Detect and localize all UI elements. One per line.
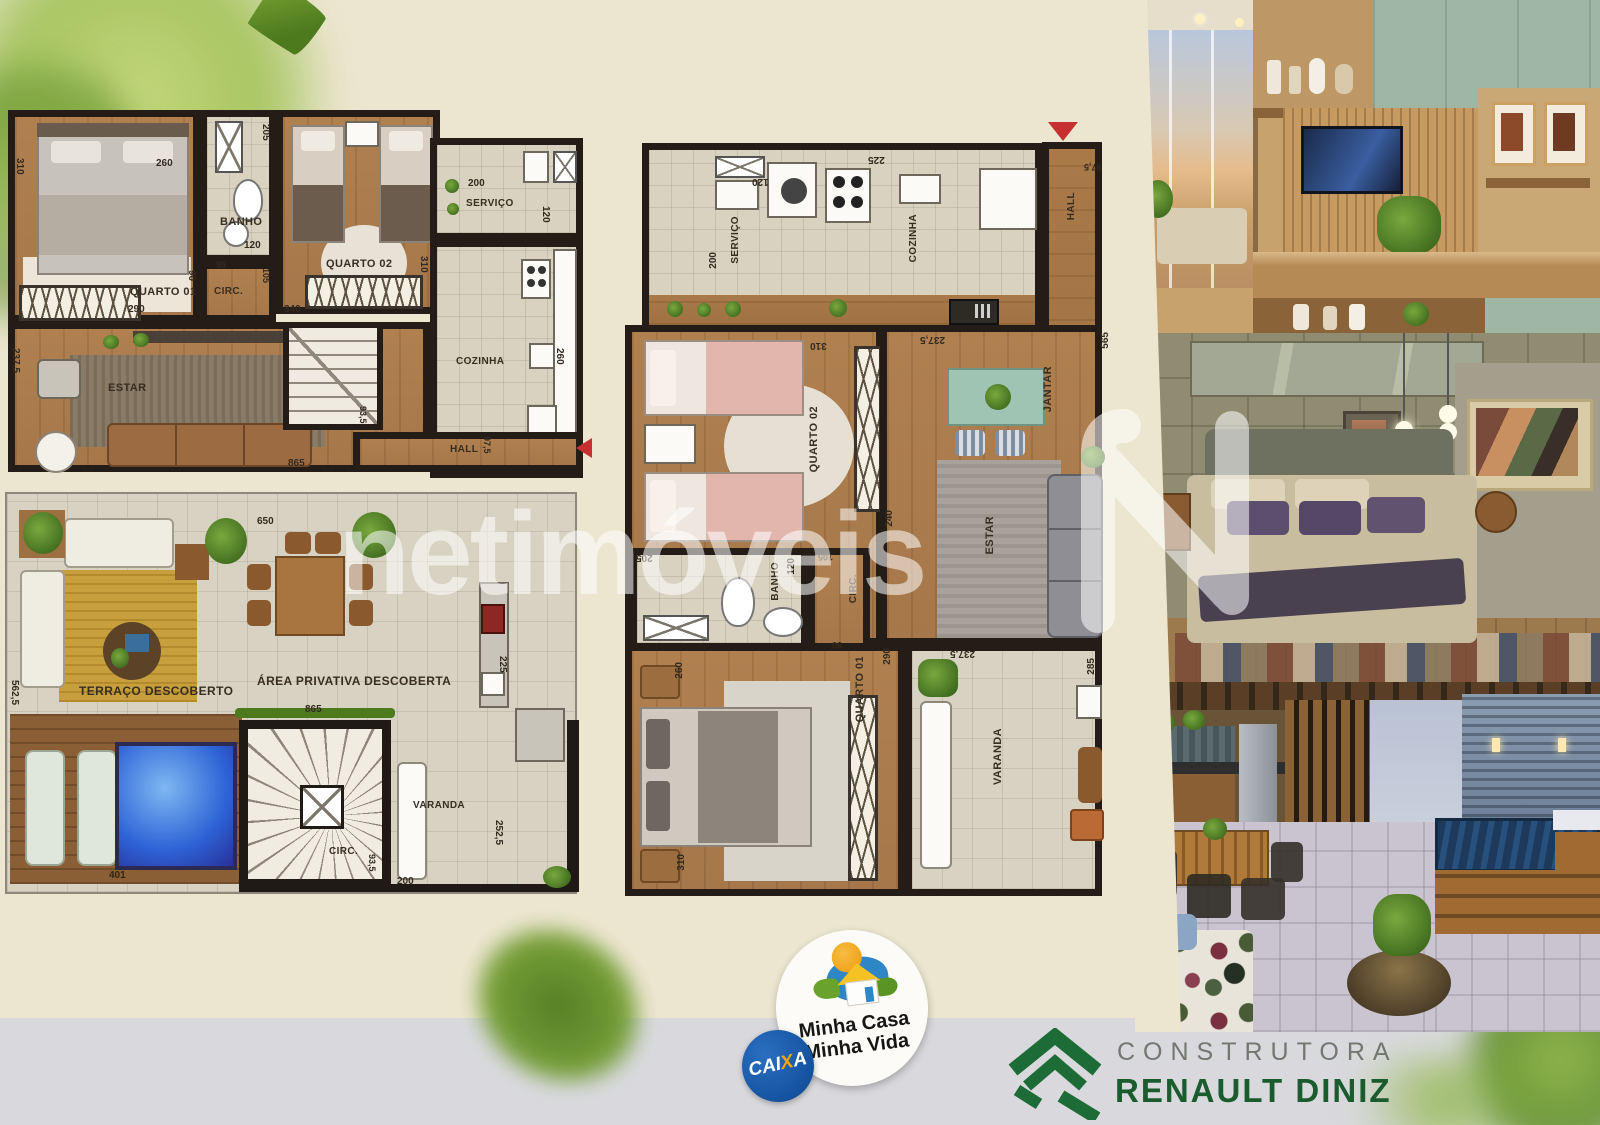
photo-terrace (1135, 682, 1600, 1032)
sconce-light (1492, 738, 1500, 752)
rug (937, 460, 1061, 638)
side-table (35, 431, 77, 473)
dim: 260 (156, 158, 173, 169)
stove (521, 259, 551, 299)
room-label: VARANDA (992, 728, 1004, 785)
caixa-wordmark: CAIXA (740, 1047, 815, 1083)
dim: 290 (882, 648, 893, 665)
room-label: HALL (450, 444, 478, 455)
single-bed (291, 125, 345, 243)
shower (215, 121, 243, 173)
builder-name-text: RENAULT DINIZ (1115, 1072, 1392, 1110)
mirror-strip (1190, 341, 1484, 397)
caixa-letters: A (791, 1048, 809, 1071)
plant (1183, 710, 1205, 730)
stone-wall (1462, 694, 1600, 826)
jar (1323, 306, 1337, 330)
bistro-set (1078, 747, 1102, 803)
blanket (293, 185, 343, 241)
tv-screen (1301, 126, 1403, 194)
builder-chevron-icon (1005, 1028, 1105, 1120)
laundry-tank (715, 156, 765, 178)
dim: 237,5 (950, 648, 975, 659)
plant (1377, 196, 1441, 254)
pillow (301, 131, 335, 151)
washer (767, 162, 817, 218)
room-label: QUARTO 02 (808, 406, 820, 472)
dim: 225 (497, 656, 508, 673)
mcmv-logo (808, 937, 895, 1012)
art-frame (1544, 102, 1588, 166)
centerpiece-plant (985, 384, 1011, 410)
pillow (650, 350, 676, 406)
room-label: QUARTO 02 (326, 258, 392, 270)
dim: 310 (676, 854, 687, 871)
dim: 200 (708, 252, 719, 269)
room-label: QUARTO 01 (130, 286, 196, 298)
dim: 650 (257, 516, 274, 527)
dim: 310 (418, 256, 429, 273)
dim: 285 (1086, 658, 1097, 675)
pillow (646, 719, 670, 769)
round-tv-table (103, 622, 161, 680)
photo-living-room (1135, 0, 1600, 333)
watermark-text: netimóveis (338, 486, 924, 622)
burner (538, 266, 546, 274)
plan-a-room-quarto02 (276, 110, 440, 314)
lounger (77, 750, 117, 866)
dim: 340 (284, 304, 301, 315)
builder-logo: CONSTRUTORA RENAULT DINIZ (1005, 1028, 1425, 1123)
plant (445, 179, 459, 193)
double-bed (640, 707, 812, 847)
jar (1335, 64, 1353, 94)
toilet (233, 179, 263, 221)
double-bed (37, 123, 189, 275)
kitchen-sink (529, 343, 555, 369)
dim: 225 (868, 154, 885, 165)
upper-wood-shelf (1253, 0, 1373, 118)
plant (725, 301, 741, 317)
pendant-globe (1439, 405, 1457, 423)
dim: 120 (752, 176, 769, 187)
plant (133, 333, 149, 347)
room-label: HALL (1066, 192, 1077, 220)
plant (111, 648, 129, 668)
washer-door (781, 178, 807, 204)
dim: 865 (305, 704, 322, 715)
laundry-unit (515, 708, 565, 762)
dim: 237,5 (10, 348, 21, 373)
dim: 97,5 (482, 436, 492, 454)
room-label: ESTAR (108, 382, 146, 394)
right-wall (1478, 88, 1600, 258)
planter-plant (1373, 894, 1431, 956)
room-label: CIRC. (329, 846, 358, 857)
dim: 401 (109, 870, 126, 881)
sofa (107, 423, 312, 467)
room-label: TERRAÇO DESCOBERTO (79, 684, 233, 698)
dim: 93,5 (367, 854, 377, 872)
burner (833, 176, 845, 188)
art (1553, 113, 1575, 151)
dim: 97,5 (1084, 162, 1102, 172)
pillow-purple (1367, 497, 1425, 533)
plant (697, 303, 711, 317)
microwave (949, 299, 999, 325)
nightstand (644, 424, 696, 464)
jar (1349, 304, 1365, 330)
sconce-light (1558, 738, 1566, 752)
cushion-line (243, 425, 245, 465)
chair (247, 600, 271, 626)
dim: 565 (1100, 332, 1111, 349)
chair (1241, 878, 1285, 920)
laundry-unit (1076, 685, 1102, 719)
room-label: SERVIÇO (466, 198, 514, 209)
dim: 95 (216, 260, 226, 270)
spotlight (1195, 14, 1205, 24)
art-frame (1492, 102, 1536, 166)
room-label: VARANDA (413, 800, 465, 811)
dim: 200 (468, 178, 485, 189)
wardrobe (305, 275, 423, 309)
single-bed (644, 340, 804, 416)
blanket (39, 195, 187, 255)
deck-bench (1555, 832, 1600, 872)
pillow (389, 131, 423, 151)
burner (538, 279, 546, 287)
jacuzzi-ledge (1553, 810, 1600, 830)
caixa-letters: CAI (747, 1054, 783, 1081)
green-cabinet (1485, 298, 1600, 333)
dim: 205 (260, 124, 271, 141)
dim: 310 (810, 340, 827, 351)
plant (1203, 818, 1227, 840)
blanket (698, 711, 778, 843)
side-table (1475, 491, 1517, 533)
pillow (51, 141, 101, 163)
stair-core (300, 785, 344, 829)
mcmv-house-wall (845, 979, 880, 1007)
room-label: CIRC. (214, 286, 243, 297)
flyer-page: QUARTO 01 BANHO CIRC. QUARTO 02 SERVIÇO … (0, 0, 1600, 1125)
pendant-lamp (1403, 333, 1405, 425)
mcmv-leaf-left (812, 977, 840, 1000)
mcmv-house-door (865, 986, 875, 1002)
room-label: BANHO (220, 216, 262, 228)
room-label: ÁREA PRIVATIVA DESCOBERTA (257, 674, 451, 688)
jar (1309, 58, 1325, 94)
sofa-chaise (20, 570, 65, 688)
watermark-n-logo (1060, 398, 1280, 638)
dim: 865 (288, 458, 305, 469)
dim: 120 (540, 206, 551, 223)
dim: 93,5 (358, 406, 368, 424)
plant (1403, 302, 1429, 326)
fridge (979, 168, 1037, 230)
desk (345, 121, 379, 147)
spotlight (1235, 18, 1244, 27)
art (1476, 408, 1578, 476)
dim: 290 (128, 304, 145, 315)
small-tree (205, 518, 247, 564)
plant (829, 299, 847, 317)
dim: 252,5 (493, 820, 504, 845)
pool (115, 742, 237, 870)
pendant-lamp (1447, 333, 1449, 409)
room-label: COZINHA (908, 214, 919, 262)
room-label: JANTAR (1042, 366, 1054, 412)
dining-table (947, 368, 1045, 426)
stove (825, 168, 871, 223)
single-bed (379, 125, 433, 243)
tile-floor (1435, 934, 1600, 1032)
plant (667, 301, 683, 317)
builder-top-text: CONSTRUTORA (1117, 1038, 1398, 1067)
art-frame-large (1467, 399, 1593, 491)
dim: 310 (14, 158, 25, 175)
side-table (175, 544, 209, 580)
pillow-purple (1299, 501, 1361, 535)
dining-table (275, 556, 345, 636)
kitchen-sink (899, 174, 941, 204)
chair (955, 430, 985, 456)
sofa (64, 518, 174, 568)
balcony-sofa (1157, 208, 1247, 264)
room-label: ESTAR (984, 516, 996, 554)
room-label: QUARTO 01 (854, 656, 866, 722)
laundry-sink (523, 151, 549, 183)
north-arrow-icon (576, 438, 592, 458)
plant (543, 866, 571, 888)
island-counter (1253, 252, 1600, 298)
fridge (1239, 724, 1277, 822)
burner (833, 196, 845, 208)
plant (447, 203, 459, 215)
room-label: SERVIÇO (730, 216, 741, 264)
plan-a-stairs (283, 322, 383, 430)
jar (1267, 60, 1281, 94)
lounger (25, 750, 65, 866)
dim: 105 (261, 268, 271, 283)
jar (1293, 304, 1309, 330)
dim: 237,5 (920, 334, 945, 345)
chair (995, 430, 1025, 456)
plant (23, 512, 63, 554)
burner (527, 279, 535, 287)
pillow (646, 781, 670, 831)
floor-plan-upper: QUARTO 01 BANHO CIRC. QUARTO 02 SERVIÇO … (8, 110, 593, 472)
armchair (37, 359, 81, 399)
dim: 562,5 (9, 680, 20, 705)
art (1501, 113, 1523, 151)
burner (851, 196, 863, 208)
burner (527, 266, 535, 274)
chair (247, 564, 271, 590)
bench (397, 762, 427, 880)
dim: 260 (674, 662, 685, 679)
cushion-line (175, 425, 177, 465)
sink (481, 672, 505, 696)
lower-shelf (1253, 298, 1600, 333)
lounge-chair (1070, 809, 1104, 841)
blanket (381, 185, 431, 241)
dim: 90 (832, 640, 842, 650)
north-arrow-icon (1048, 122, 1078, 141)
dim: 260 (554, 348, 565, 365)
blanket (706, 342, 802, 414)
chair (285, 532, 311, 554)
plan-a-room-servico (430, 138, 583, 240)
microwave-dots (975, 304, 993, 318)
plant (103, 335, 119, 349)
headboard (37, 123, 189, 137)
wardrobe (19, 285, 141, 321)
room-label: COZINHA (456, 356, 504, 367)
dim: 90 (186, 270, 197, 281)
burner (851, 176, 863, 188)
bench (920, 701, 952, 869)
wardrobe (848, 695, 878, 881)
dim: 200 (397, 876, 414, 887)
dim: 120 (244, 240, 261, 251)
plant (918, 659, 958, 697)
jar (1289, 66, 1301, 94)
planter-pot (1347, 950, 1451, 1016)
tv-screen (125, 634, 149, 652)
chair (1271, 842, 1303, 882)
shelf (1486, 178, 1590, 188)
nightstand (640, 849, 680, 883)
wall (567, 720, 579, 892)
chair (1187, 874, 1231, 918)
plan-c-kitchen-block (642, 143, 1042, 325)
counter (649, 295, 1035, 325)
washer (553, 151, 577, 183)
